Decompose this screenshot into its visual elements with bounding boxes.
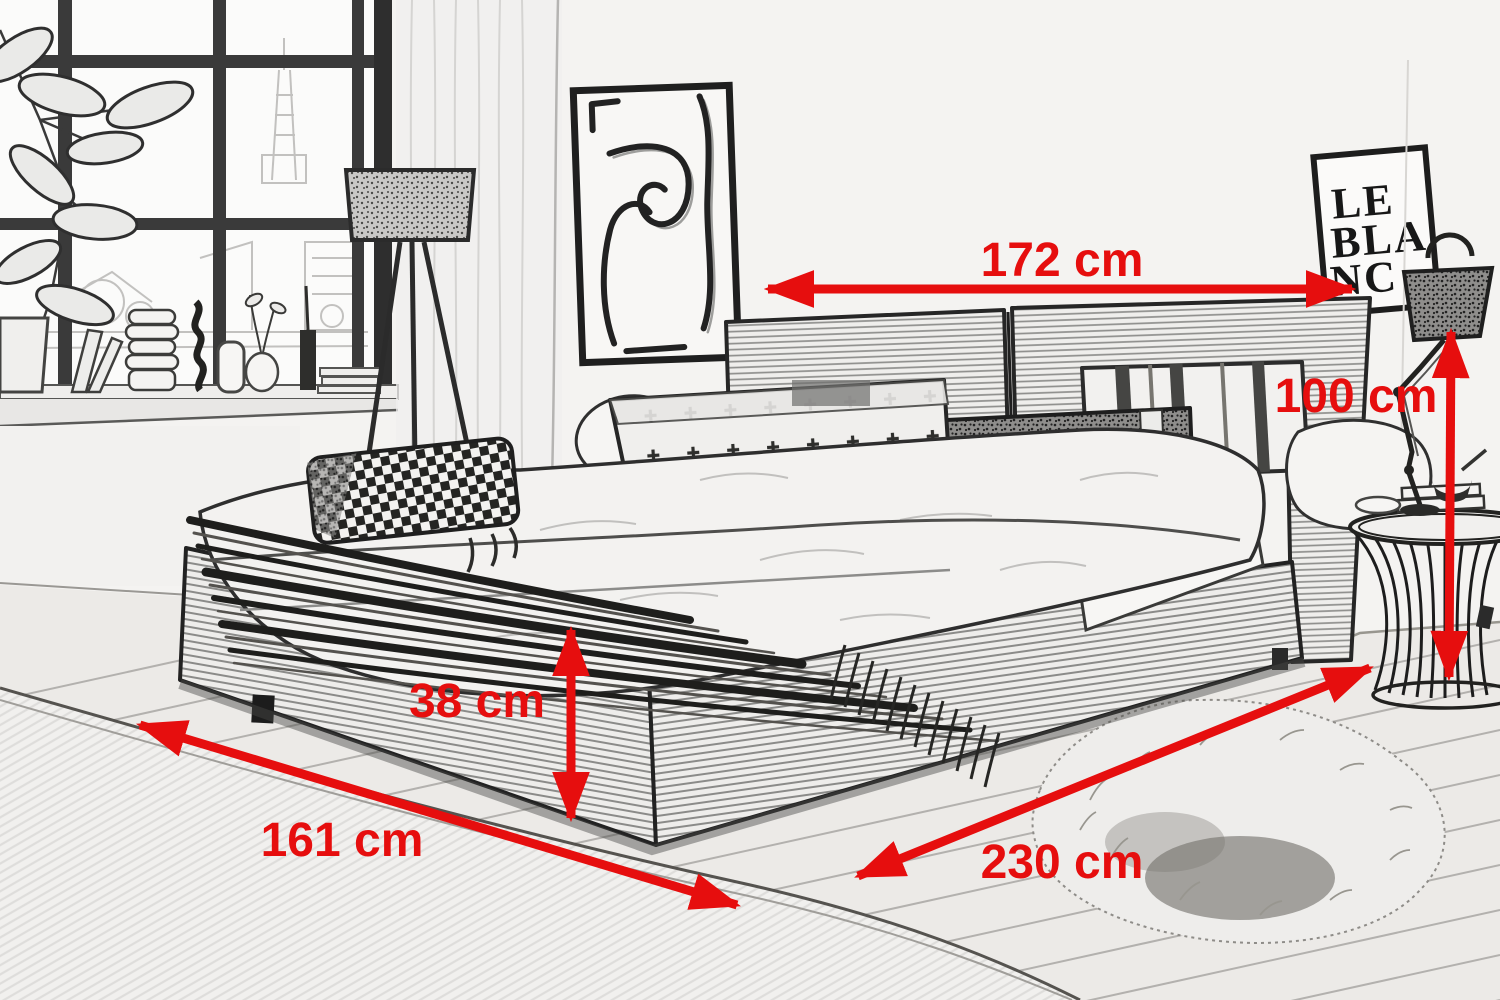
lamp-base [1400, 504, 1440, 516]
dimension-label-161: 161 cm [261, 814, 424, 867]
bedroom-sketch: LE BLA NC [0, 0, 1500, 1000]
abstract-art-poster [573, 85, 738, 362]
white-vase [218, 342, 244, 392]
double-arrow-icon [1449, 332, 1451, 677]
bed-dimension-diagram: LE BLA NC [0, 0, 1500, 1000]
dimension-label-100: 100 cm [1275, 370, 1438, 423]
white-bowl [1356, 497, 1400, 513]
dimension-label-172: 172 cm [981, 234, 1144, 287]
dimension-label-38: 38 cm [409, 675, 545, 728]
desk-lamp-shade [1404, 268, 1492, 340]
plant-pot [0, 318, 48, 392]
lamp-shade [346, 170, 474, 240]
ring-stack-vase [126, 310, 178, 390]
flat-book-stack [318, 368, 380, 393]
dimension-label-230: 230 cm [981, 836, 1144, 889]
